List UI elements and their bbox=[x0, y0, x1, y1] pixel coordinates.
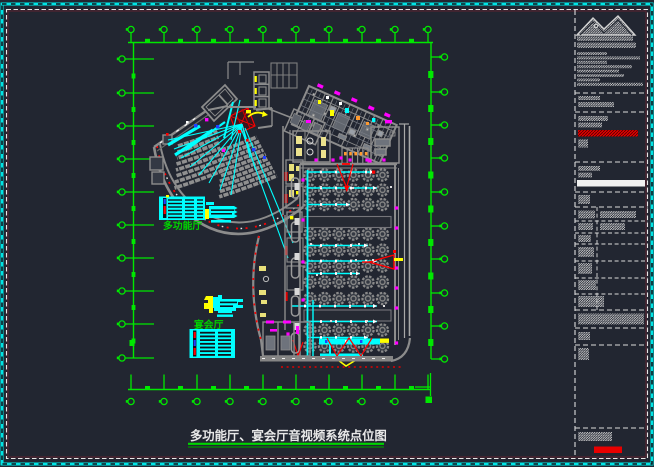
svg-text:多功能厅: 多功能厅 bbox=[163, 219, 202, 232]
svg-text:多功能厅、宴会厅音视频系统点位图: 多功能厅、宴会厅音视频系统点位图 bbox=[190, 428, 387, 443]
